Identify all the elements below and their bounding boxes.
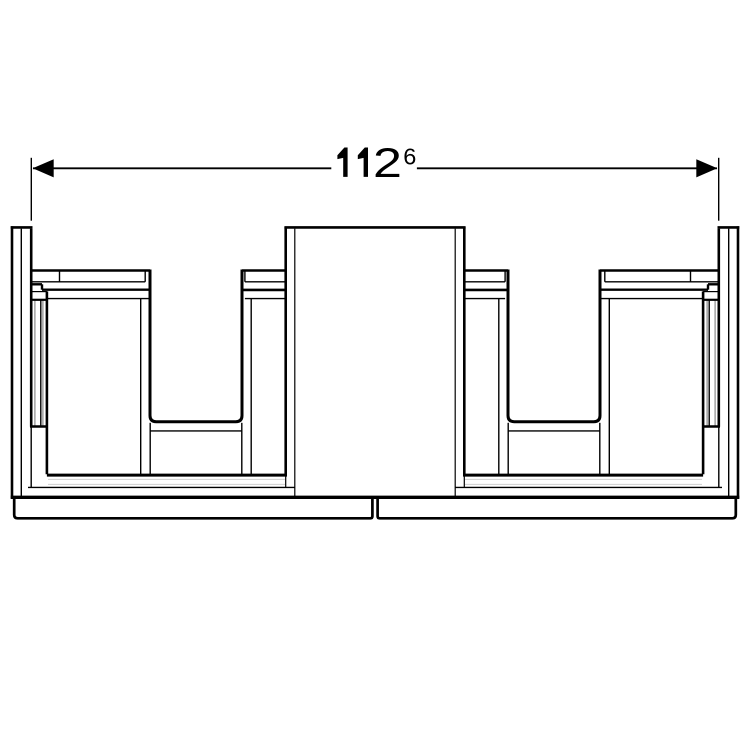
svg-text:6: 6 — [403, 144, 416, 170]
svg-text:2: 2 — [373, 140, 402, 187]
